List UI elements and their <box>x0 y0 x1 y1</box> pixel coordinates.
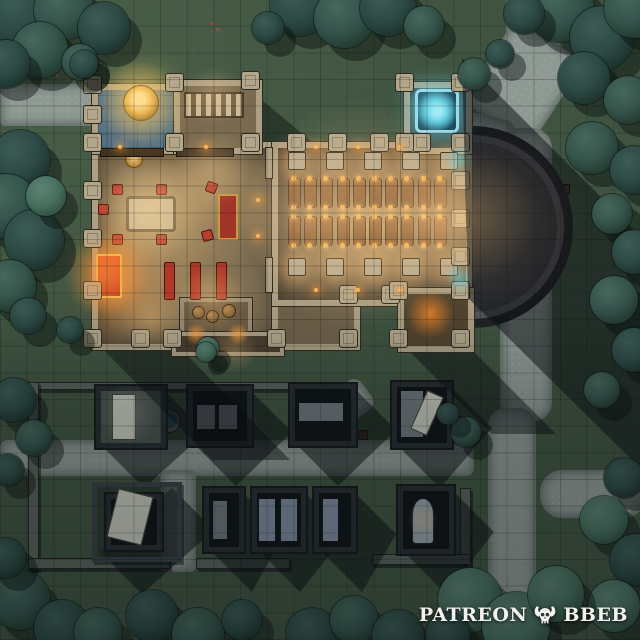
horned-skull-icon <box>533 605 557 626</box>
bottom-vignette <box>0 0 640 640</box>
battle-map-church-graveyard: PATREON BBEB <box>0 0 640 640</box>
watermark: PATREON BBEB <box>419 604 628 626</box>
watermark-suffix: BBEB <box>563 604 628 626</box>
map-layers <box>0 0 640 640</box>
watermark-brand: PATREON <box>419 604 527 626</box>
